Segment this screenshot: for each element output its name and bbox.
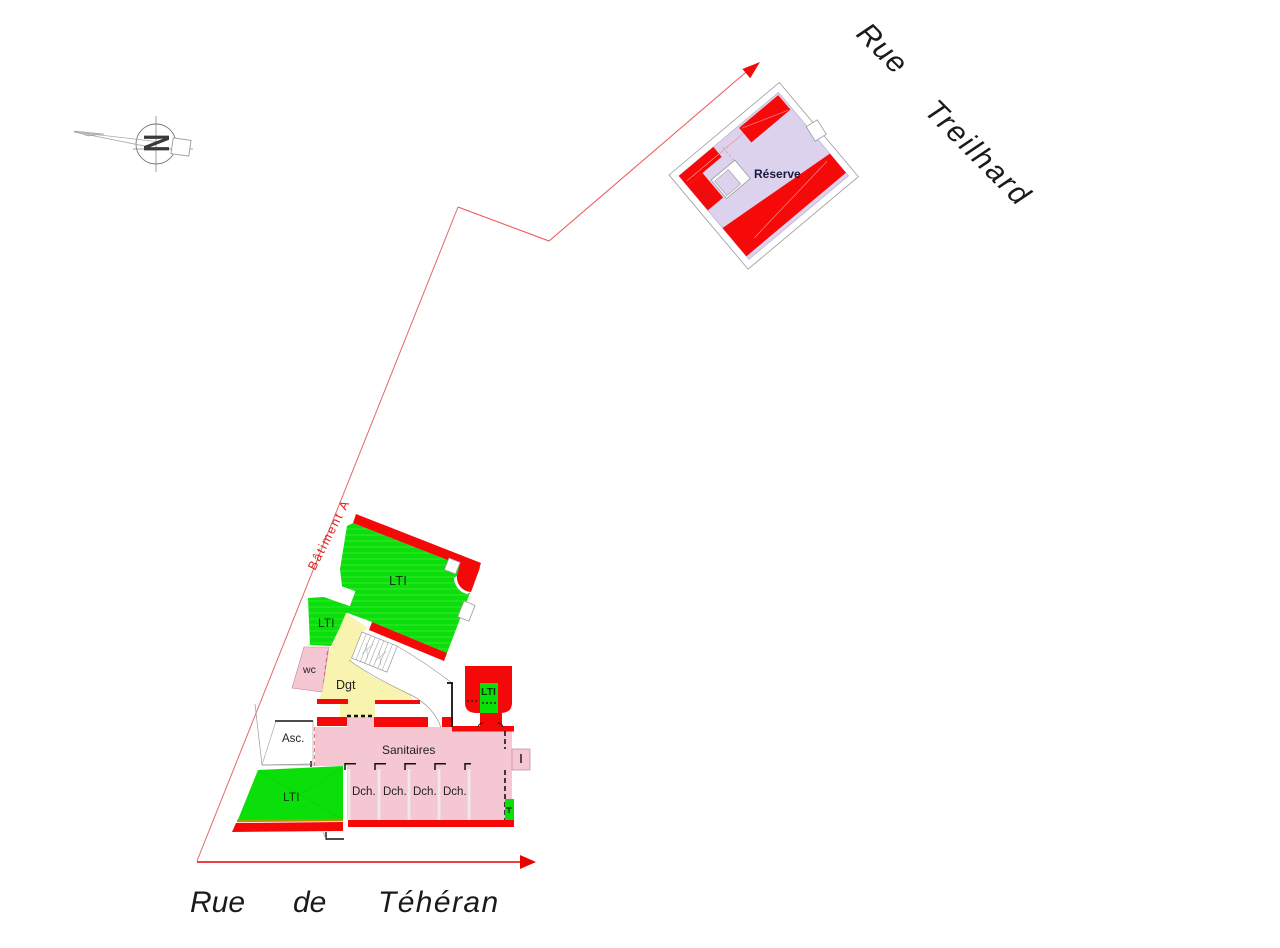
svg-text:Dch.: Dch.: [352, 786, 376, 798]
svg-text:LTI: LTI: [318, 616, 334, 630]
svg-text:Dch.: Dch.: [383, 786, 407, 798]
svg-text:LTI: LTI: [389, 573, 407, 588]
svg-text:Réserve: Réserve: [754, 167, 801, 181]
svg-text:Dch.: Dch.: [413, 786, 437, 798]
svg-text:Téhéran: Téhéran: [378, 886, 500, 919]
svg-text:wc: wc: [302, 664, 316, 676]
svg-text:N: N: [136, 134, 177, 152]
svg-text:Sanitaires: Sanitaires: [382, 743, 435, 757]
svg-text:de: de: [293, 886, 326, 919]
svg-text:Dch.: Dch.: [443, 786, 467, 798]
svg-text:Asc.: Asc.: [282, 733, 304, 745]
svg-text:LTI: LTI: [283, 790, 299, 804]
svg-text:LTI: LTI: [481, 686, 496, 698]
svg-text:Rue: Rue: [190, 886, 245, 919]
svg-text:Dgt: Dgt: [336, 678, 356, 692]
